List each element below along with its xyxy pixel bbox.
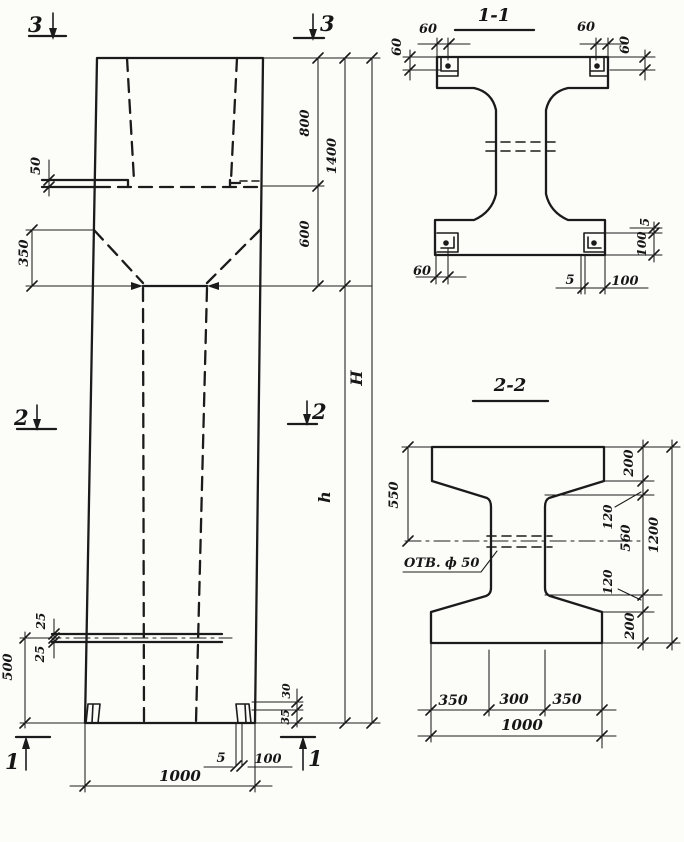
section-2-2-title: 2-2 [493,375,527,396]
dim-1400: 1400 [325,138,340,174]
dim-60-top-left-v: 60 [390,38,405,56]
dim-H: H [347,370,366,387]
corner-angle-top-right [590,57,608,76]
dim-100-base: 100 [254,752,281,767]
dim-25-bottom: 25 [33,646,47,664]
section-1-1-outline [435,57,608,255]
dim-60-top-right-h: 60 [577,20,595,35]
section-1-1-title: 1-1 [478,5,511,26]
marker-label: 1 [308,746,323,771]
dim-300: 300 [499,692,528,708]
dim-550: 550 [387,481,402,508]
section-marker-2-right: 2 [288,399,327,426]
anchor-dot [445,63,451,69]
section-2-2-outline [431,447,604,643]
dim-120-bottom: 120 [601,569,615,595]
marker-label: 3 [320,11,335,36]
marker-arrowhead [49,28,57,40]
marker-label: 2 [13,405,29,430]
elevation-hidden-lines [94,58,263,722]
marker-arrowhead [309,29,317,41]
dim-h: h [315,491,334,503]
anchor-dot [591,240,597,246]
dim-60-bottom-left: 60 [413,264,431,279]
section-marker-3-right: 3 [294,11,335,41]
dim-60-top-left-h: 60 [419,22,437,37]
dim-350: 350 [17,239,32,266]
dim-100-bottom: 100 [611,274,638,289]
marker-label: 1 [5,749,20,774]
dim-1200: 1200 [647,517,662,553]
hole-diameter-label: ОТВ. ф 50 [404,556,479,571]
dim-5-base: 5 [216,751,225,766]
marker-label: 2 [311,399,327,424]
dim-800: 800 [298,109,313,136]
dim-200-top: 200 [622,449,637,477]
anchor-dot [594,63,600,69]
section-marker-3-left: 3 [28,12,66,40]
dim-30: 30 [280,683,293,699]
base-wedge-left [86,704,100,723]
dim-1000: 1000 [501,716,543,734]
dim-600: 600 [298,220,313,247]
dim-560: 560 [619,524,634,551]
anchor-dot [443,240,449,246]
dim-35: 35 [279,709,292,724]
marker-label: 3 [28,12,43,37]
dim-100-right: 100 [635,231,649,257]
dim-350-right: 350 [552,692,581,708]
section-1-1-view: 1-1 60 60 60 60 60 [390,5,662,294]
dim-60-top-right-v: 60 [618,36,633,54]
dim-25-top: 25 [34,613,48,631]
dim-50: 50 [29,157,44,175]
technical-drawing: 3 3 2 2 1 [0,0,684,842]
dim-1000: 1000 [159,767,201,785]
dim-350-left: 350 [438,693,467,709]
section-marker-1-right: 1 [281,736,323,771]
base-wedge-right [236,704,251,723]
dim-500: 500 [1,653,16,680]
elevation-view: 3 3 2 2 1 [1,11,380,792]
section-marker-2-left: 2 [13,405,56,431]
section-2-2-view: 2-2 ОТВ. ф 50 550 200 120 560 120 200 12… [387,375,680,748]
dim-120-top: 120 [601,504,615,530]
drawing-sheet: 3 3 2 2 1 [0,0,684,842]
dim-5-bottom: 5 [565,273,574,288]
dim-5-right: 5 [638,218,652,226]
column-outline [42,58,263,723]
dim-200-bottom: 200 [623,612,638,640]
section-marker-1-left: 1 [5,736,50,774]
corner-angle-bottom-right [584,233,605,252]
